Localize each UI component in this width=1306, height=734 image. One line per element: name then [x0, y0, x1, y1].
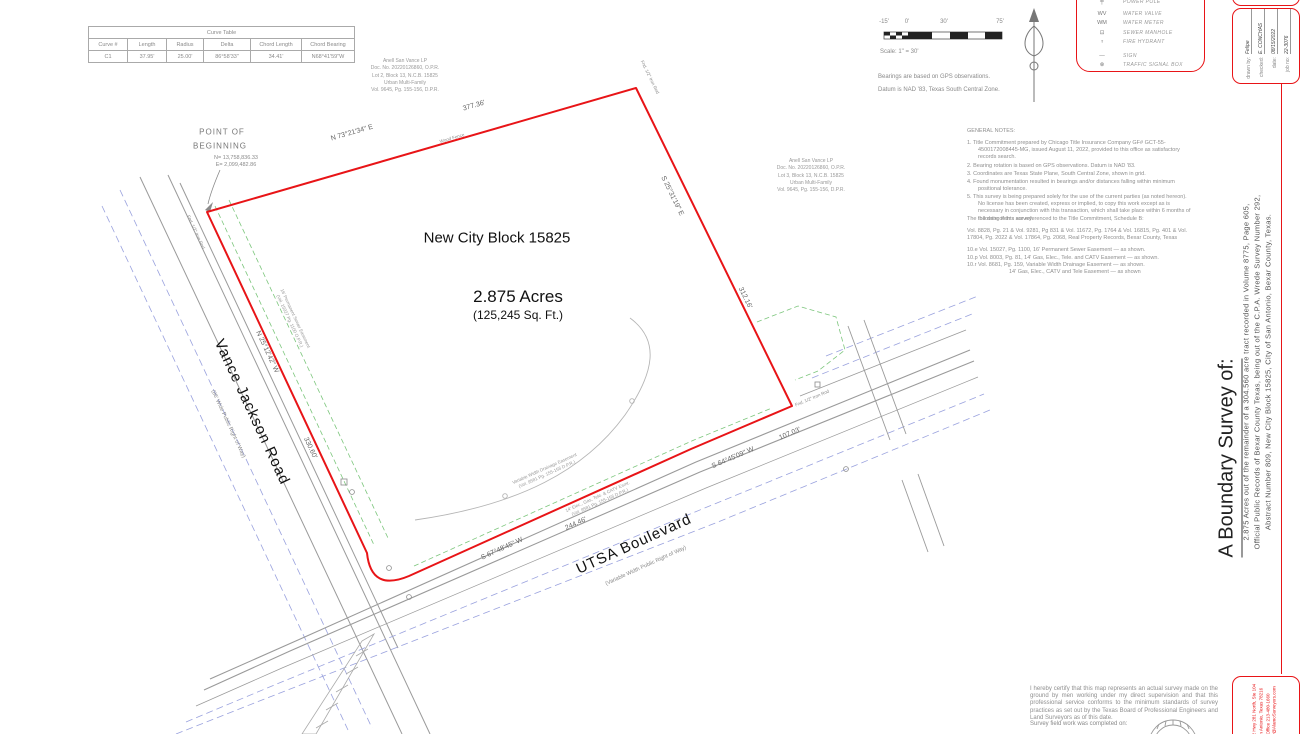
general-note: 2. Bearing rotation is based on GPS obse…: [967, 163, 1195, 170]
general-note: 4. Found monumentation resulted in beari…: [967, 179, 1195, 193]
company-line: Office 213-480-1660: [1265, 668, 1272, 734]
curve-table-header: Curve #: [89, 39, 128, 51]
certification-text: I hereby certify that this map represent…: [1030, 686, 1218, 722]
sheet-description: 2.875 Acres out of the remainder of a 30…: [1242, 195, 1275, 550]
fieldwork-note: Survey field work was completed on:: [1030, 721, 1127, 727]
schedule-b-notes: The following items are referenced to th…: [967, 216, 1195, 276]
general-notes-title: GENERAL NOTES:: [967, 128, 1195, 135]
surveyor-seal: [1149, 720, 1197, 734]
sign-icon: —: [1089, 53, 1115, 59]
pob-easting: E= 2,099,482.86: [216, 162, 257, 168]
general-note: 3. Coordinates are Texas State Plane, So…: [967, 171, 1195, 178]
title-block-border: [1281, 84, 1282, 674]
adjoiner-line: Lot 2, Block 13, N.C.B. 15825: [371, 73, 440, 80]
utsa-row-lines: [176, 296, 990, 734]
schedule-b-item: 10.r Vol. 8681, Pg. 159, Variable Width …: [967, 262, 1195, 269]
traffic-signal-box-icon: ⊗: [1089, 62, 1115, 68]
curve-table-header: Chord Bearing: [302, 39, 355, 51]
legend-label: TRAFFIC SIGNAL BOX: [1123, 62, 1183, 68]
vance-jackson-road-lines: [140, 175, 430, 734]
legend-label: POWER POLE: [1123, 0, 1161, 5]
description-line: 2.875 Acres out of the remainder of a 30…: [1242, 195, 1253, 550]
field-value: Felipe: [1245, 9, 1252, 54]
legend-label: WATER METER: [1123, 20, 1164, 26]
schedule-b-item: 14' Gas, Elec., CATV and Tele Easement —…: [967, 269, 1195, 276]
curve-table-header: Chord Length: [251, 39, 302, 51]
adjoiner-line: Urban Multi-Family: [371, 80, 440, 87]
drawn-by-fields: drawn by:Felipe checked:E. CONCHAS date:…: [1239, 9, 1291, 81]
water-valve-icon: WV: [1089, 11, 1115, 17]
general-notes: GENERAL NOTES: 1. Title Commitment prepa…: [967, 128, 1195, 224]
pob-northing: N= 13,758,836.33: [214, 155, 258, 161]
adjoiner-line: Urban Multi-Family: [777, 180, 846, 187]
schedule-b-item: 10.p Vol. 8003, Pg. 81, 14' Gas, Elec., …: [967, 255, 1195, 262]
curve-table-cell: 25.00': [167, 51, 204, 63]
adjoiner-note-north: Anell San Vance LP Doc. No. 20220126860,…: [371, 58, 440, 94]
adjoiner-line: Lot 3, Block 13, N.C.B. 15825: [777, 173, 846, 180]
survey-sheet: Curve Table Curve # Length Radius Delta …: [0, 0, 1306, 734]
field-label: date:: [1272, 57, 1278, 81]
scale-tick: 0': [905, 19, 909, 25]
legend-label: SEWER MANHOLE: [1123, 30, 1173, 36]
pob-leader-arrow: [205, 170, 220, 212]
datum-note: Datum is NAD '83, Texas South Central Zo…: [878, 87, 1000, 93]
datum-note: Bearings are based on GPS observations.: [878, 74, 990, 80]
vance-jackson-row-lines: [102, 190, 372, 730]
median-strip: [302, 634, 374, 734]
curve-table-header: Radius: [167, 39, 204, 51]
pob-label: BEGINNING: [193, 142, 247, 151]
curve-table-title: Curve Table: [89, 27, 355, 39]
utsa-boulevard-road-lines: [196, 350, 978, 706]
schedule-b-volumes: Vol. 8828, Pg. 21 & Vol. 9281, Pg 831 & …: [967, 228, 1195, 242]
curve-table: Curve Table Curve # Length Radius Delta …: [88, 26, 355, 63]
scale-label: Scale: 1" = 30': [880, 49, 918, 55]
parcel-block-label: New City Block 15825: [424, 230, 571, 247]
curve-table-header: Length: [128, 39, 167, 51]
sheet-title: A Boundary Survey of:: [1216, 358, 1243, 557]
adjoiner-line: Doc. No. 20220126860, O.P.R.: [777, 165, 846, 172]
field-value: 22-3076: [1284, 9, 1291, 54]
adjoiner-line: Vol. 9645, Pg. 155-156, D.P.R.: [371, 87, 440, 94]
survey-map-drawing: [0, 0, 1306, 734]
field-value: E. CONCHAS: [1258, 9, 1265, 54]
field-label: job no:: [1285, 57, 1291, 81]
cross-street-lines: [848, 320, 944, 552]
curve-table-cell: C1: [89, 51, 128, 63]
schedule-b-intro: The following items are referenced to th…: [967, 216, 1195, 223]
field-value: 08/15/2022: [1271, 9, 1278, 54]
adjoiner-line: Vol. 9645, Pg. 155-156, D.P.R.: [777, 187, 846, 194]
scale-bar: [884, 32, 1002, 39]
adjoiner-note-east: Anell San Vance LP Doc. No. 20220126860,…: [777, 158, 846, 194]
schedule-b-item: 10.e Vol. 15027, Pg. 1100, 16' Permanent…: [967, 247, 1195, 254]
adjoiner-line: Anell San Vance LP: [371, 58, 440, 65]
legend-label: SIGN: [1123, 53, 1137, 59]
pob-label: POINT OF: [199, 128, 245, 137]
scale-tick: 75': [996, 19, 1004, 25]
sewer-manhole-icon: ⊡: [1089, 30, 1115, 36]
curve-table-header: Delta: [204, 39, 251, 51]
adjoiner-line: Doc. No. 20220126860, O.P.R.: [371, 65, 440, 72]
company-line: Guy@AlamoSurveyors.com: [1272, 668, 1279, 734]
parcel-area-label: 2.875 Acres: [473, 287, 563, 307]
description-line: Abstract Number 809, New City Block 1582…: [1263, 195, 1274, 550]
general-note: 1. Title Commitment prepared by Chicago …: [967, 140, 1195, 161]
water-meter-icon: WM: [1089, 20, 1115, 26]
curve-table-cell: 37.95': [128, 51, 167, 63]
company-info: 10 02 Hwy 281 North, Ste 104 San Antonio…: [1252, 668, 1279, 734]
field-label: drawn by:: [1246, 57, 1252, 81]
north-arrow-icon: [1025, 8, 1043, 102]
scale-tick: 30': [940, 19, 948, 25]
parcel-area-sqft-label: (125,245 Sq. Ft.): [473, 308, 563, 322]
legend: ╪POWER POLE WVWATER VALVE WMWATER METER …: [1076, 0, 1205, 72]
title-block-upper-box: [1232, 0, 1300, 6]
curve-table-cell: N68°41'59"W: [302, 51, 355, 63]
curve-table-cell: 86°58'33": [204, 51, 251, 63]
company-line: San Antonio, Texas 78216: [1258, 668, 1265, 734]
easement-lines-green: [215, 200, 845, 566]
description-line: Official Public Records of Bexar County …: [1253, 195, 1264, 550]
adjoiner-line: Anell San Vance LP: [777, 158, 846, 165]
fire-hydrant-icon: ♆: [1089, 39, 1115, 45]
legend-label: FIRE HYDRANT: [1123, 39, 1165, 45]
company-line: 10 02 Hwy 281 North, Ste 104: [1252, 668, 1259, 734]
curve-table-cell: 34.41': [251, 51, 302, 63]
field-label: checked:: [1259, 57, 1265, 81]
power-pole-icon: ╪: [1089, 0, 1115, 5]
legend-label: WATER VALVE: [1123, 11, 1162, 17]
scale-tick: -15': [879, 19, 889, 25]
